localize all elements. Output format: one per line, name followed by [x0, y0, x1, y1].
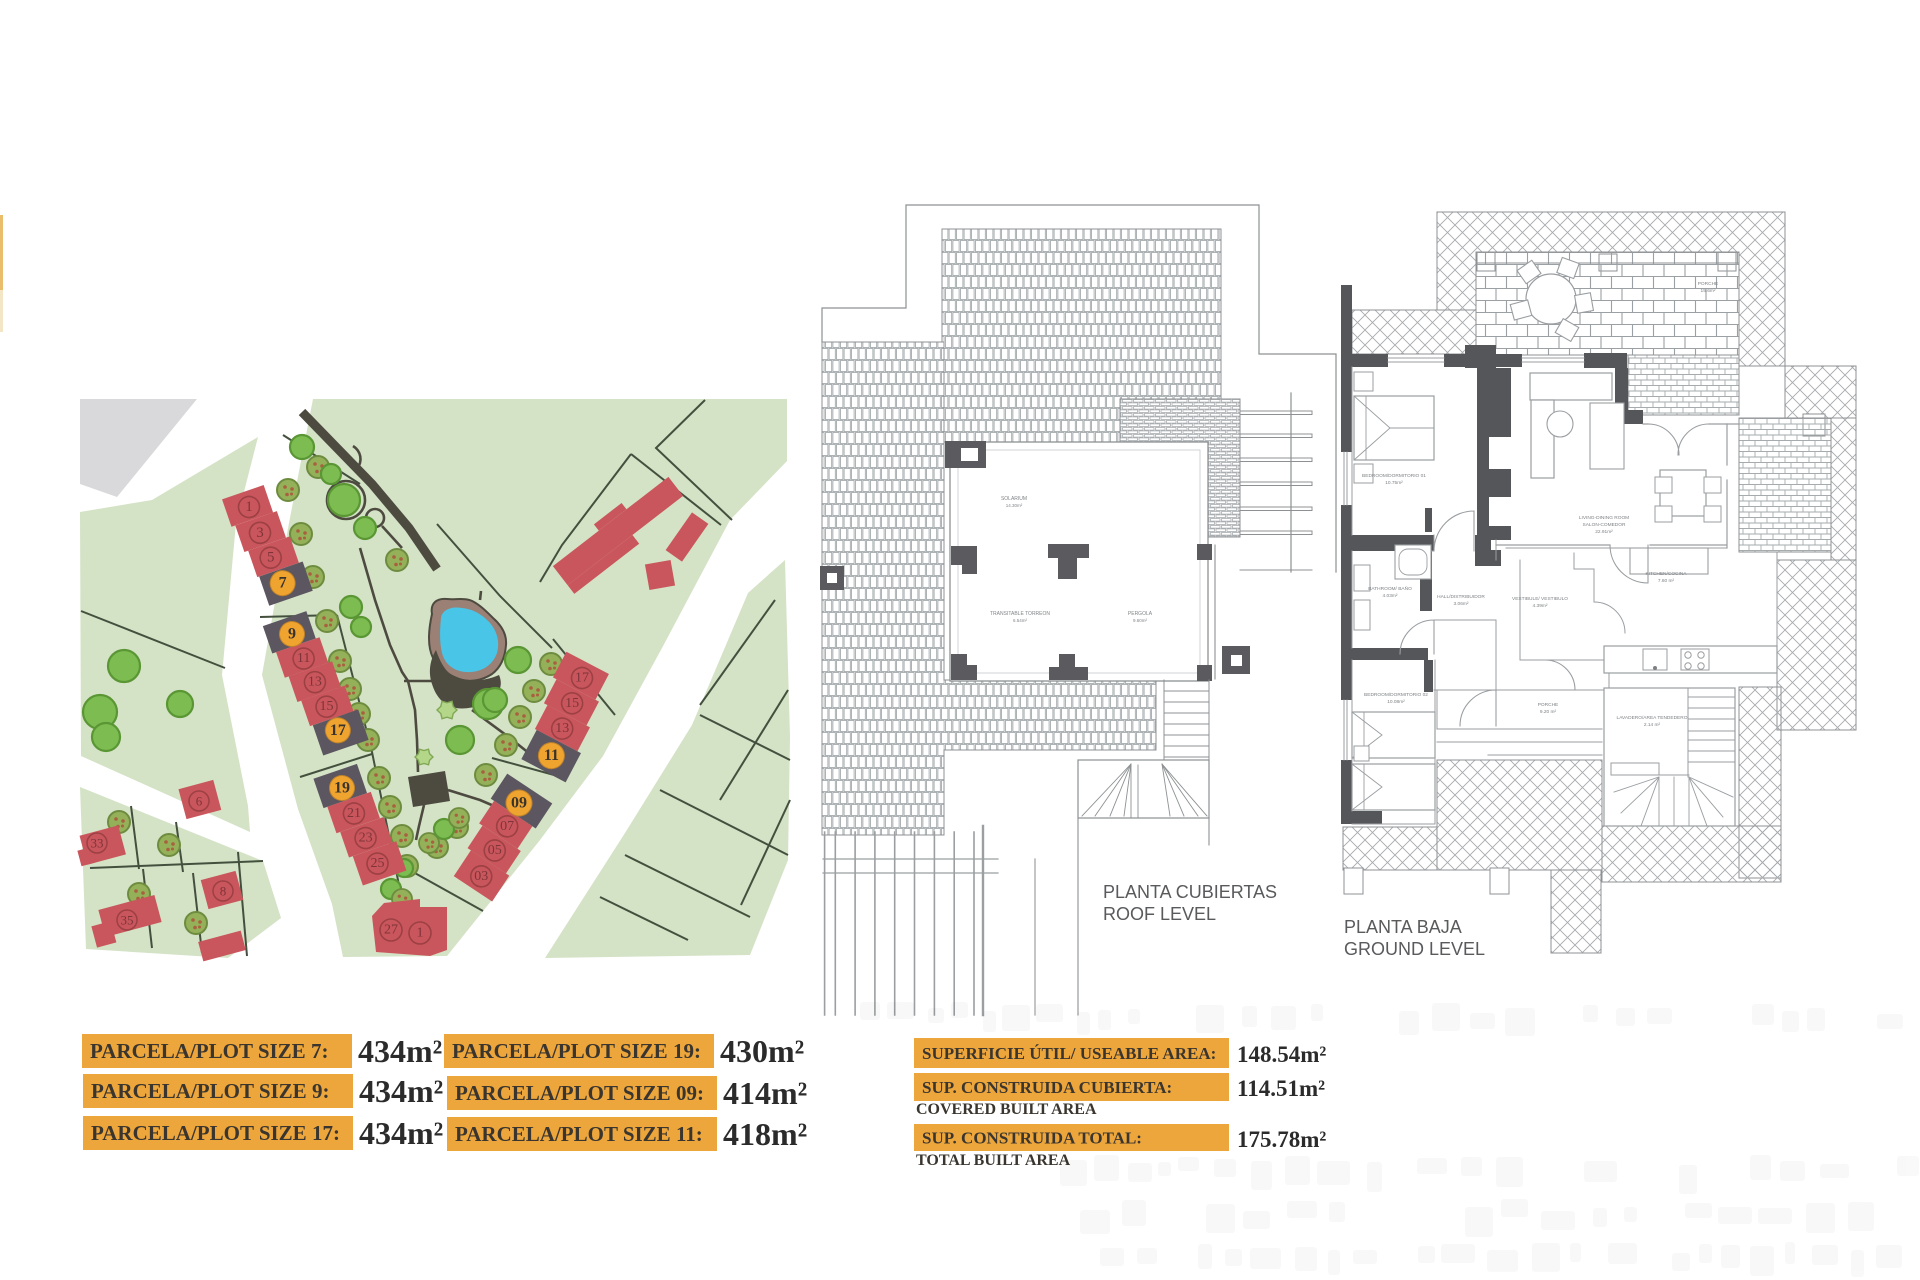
svg-text:19: 19: [334, 780, 350, 797]
svg-text:21: 21: [347, 806, 361, 821]
svg-text:148.54m²: 148.54m²: [1237, 1042, 1326, 1067]
svg-text:PARCELA/PLOT SIZE 19:: PARCELA/PLOT SIZE 19:: [452, 1039, 701, 1063]
svg-text:8: 8: [220, 884, 227, 899]
svg-text:PERGOLA: PERGOLA: [1128, 611, 1153, 617]
svg-text:2.14 m²: 2.14 m²: [1644, 722, 1661, 728]
svg-text:13: 13: [308, 675, 322, 690]
svg-text:9.20 m²: 9.20 m²: [1540, 709, 1557, 715]
svg-text:SOLARIUM: SOLARIUM: [1001, 496, 1027, 502]
svg-text:1: 1: [245, 499, 253, 515]
svg-text:5: 5: [267, 550, 275, 566]
svg-text:6: 6: [196, 794, 203, 809]
svg-text:1: 1: [417, 926, 424, 941]
svg-text:175.78m²: 175.78m²: [1237, 1127, 1326, 1152]
svg-text:11: 11: [297, 651, 310, 666]
svg-text:418m²: 418m²: [723, 1116, 807, 1152]
svg-text:SUP. CONSTRUIDA TOTAL:: SUP. CONSTRUIDA TOTAL:: [922, 1128, 1142, 1147]
svg-text:SUPERFICIE ÚTIL/ USEABLE AREA:: SUPERFICIE ÚTIL/ USEABLE AREA:: [922, 1044, 1216, 1063]
svg-text:13: 13: [555, 721, 569, 736]
svg-text:15: 15: [565, 696, 579, 711]
svg-text:PARCELA/PLOT SIZE 7:: PARCELA/PLOT SIZE 7:: [90, 1039, 328, 1063]
svg-text:SUP. CONSTRUIDA CUBIERTA:: SUP. CONSTRUIDA CUBIERTA:: [922, 1078, 1172, 1097]
svg-text:14.30m²: 14.30m²: [1006, 503, 1023, 508]
svg-text:15: 15: [320, 699, 334, 714]
svg-text:PORCHE: PORCHE: [1698, 281, 1719, 287]
svg-text:434m²: 434m²: [359, 1115, 443, 1151]
svg-text:17: 17: [575, 671, 589, 686]
svg-text:PLANTA CUBIERTAS: PLANTA CUBIERTAS: [1103, 882, 1277, 902]
svg-text:4.39m²: 4.39m²: [1533, 603, 1548, 609]
svg-text:7.60 m²: 7.60 m²: [1658, 578, 1675, 584]
svg-text:LIVING-DINING ROOM: LIVING-DINING ROOM: [1579, 515, 1629, 521]
svg-text:HALL/DISTRIBUIDOR: HALL/DISTRIBUIDOR: [1437, 594, 1485, 600]
svg-text:10.75m²: 10.75m²: [1385, 480, 1403, 486]
svg-text:114.51m²: 114.51m²: [1237, 1076, 1325, 1101]
svg-text:VESTIBULE/ VESTIBULO: VESTIBULE/ VESTIBULO: [1512, 596, 1568, 602]
svg-text:9.60m²: 9.60m²: [1133, 618, 1148, 623]
svg-text:TRANSITABLE TORREON: TRANSITABLE TORREON: [990, 611, 1050, 617]
svg-text:434m²: 434m²: [359, 1073, 443, 1109]
svg-text:PORCHE: PORCHE: [1538, 702, 1559, 708]
svg-text:BEDROOM/DORMITORIO 01: BEDROOM/DORMITORIO 01: [1362, 473, 1426, 479]
svg-text:6.54m²: 6.54m²: [1013, 618, 1028, 623]
svg-text:33: 33: [91, 836, 104, 851]
svg-text:15.6m²: 15.6m²: [1701, 288, 1716, 294]
svg-text:COVERED BUILT AREA: COVERED BUILT AREA: [916, 1101, 1097, 1118]
svg-text:10.08m²: 10.08m²: [1387, 699, 1405, 705]
svg-text:17: 17: [330, 722, 346, 739]
svg-text:3: 3: [256, 525, 264, 541]
svg-text:35: 35: [121, 913, 134, 928]
svg-text:22.91m²: 22.91m²: [1595, 529, 1613, 535]
svg-text:4.03m²: 4.03m²: [1383, 593, 1398, 599]
svg-text:09: 09: [511, 795, 527, 812]
svg-text:11: 11: [544, 747, 559, 764]
svg-text:25: 25: [371, 856, 385, 871]
svg-text:BATHROOM/ BAÑO: BATHROOM/ BAÑO: [1368, 585, 1412, 592]
svg-text:TOTAL BUILT AREA: TOTAL BUILT AREA: [916, 1152, 1071, 1169]
svg-text:PARCELA/PLOT SIZE 09:: PARCELA/PLOT SIZE 09:: [455, 1081, 704, 1105]
svg-text:GROUND LEVEL: GROUND LEVEL: [1344, 939, 1485, 959]
svg-text:LAVADERO/AREA TENDEDERO: LAVADERO/AREA TENDEDERO: [1617, 715, 1688, 721]
svg-text:434m²: 434m²: [358, 1033, 442, 1069]
svg-text:430m²: 430m²: [720, 1033, 804, 1069]
svg-text:ROOF LEVEL: ROOF LEVEL: [1103, 904, 1216, 924]
svg-text:PARCELA/PLOT SIZE 11:: PARCELA/PLOT SIZE 11:: [455, 1122, 703, 1146]
svg-text:PLANTA BAJA: PLANTA BAJA: [1344, 917, 1462, 937]
svg-text:23: 23: [359, 831, 373, 846]
svg-text:05: 05: [488, 843, 502, 858]
svg-text:27: 27: [384, 923, 398, 938]
svg-text:KITCHEN/COCINA: KITCHEN/COCINA: [1645, 571, 1687, 577]
svg-text:414m²: 414m²: [723, 1075, 807, 1111]
svg-text:03: 03: [474, 869, 488, 884]
svg-text:7: 7: [279, 575, 287, 592]
svg-text:PARCELA/PLOT SIZE 9:: PARCELA/PLOT SIZE 9:: [91, 1079, 329, 1103]
svg-text:3.06m²: 3.06m²: [1454, 601, 1469, 607]
svg-text:PARCELA/PLOT SIZE 17:: PARCELA/PLOT SIZE 17:: [91, 1121, 340, 1145]
svg-text:SALON-COMEDOR: SALON-COMEDOR: [1583, 522, 1626, 528]
svg-text:07: 07: [500, 819, 514, 834]
svg-text:9: 9: [288, 626, 296, 643]
svg-text:BEDROOM/DORMITORIO 02: BEDROOM/DORMITORIO 02: [1364, 692, 1428, 698]
